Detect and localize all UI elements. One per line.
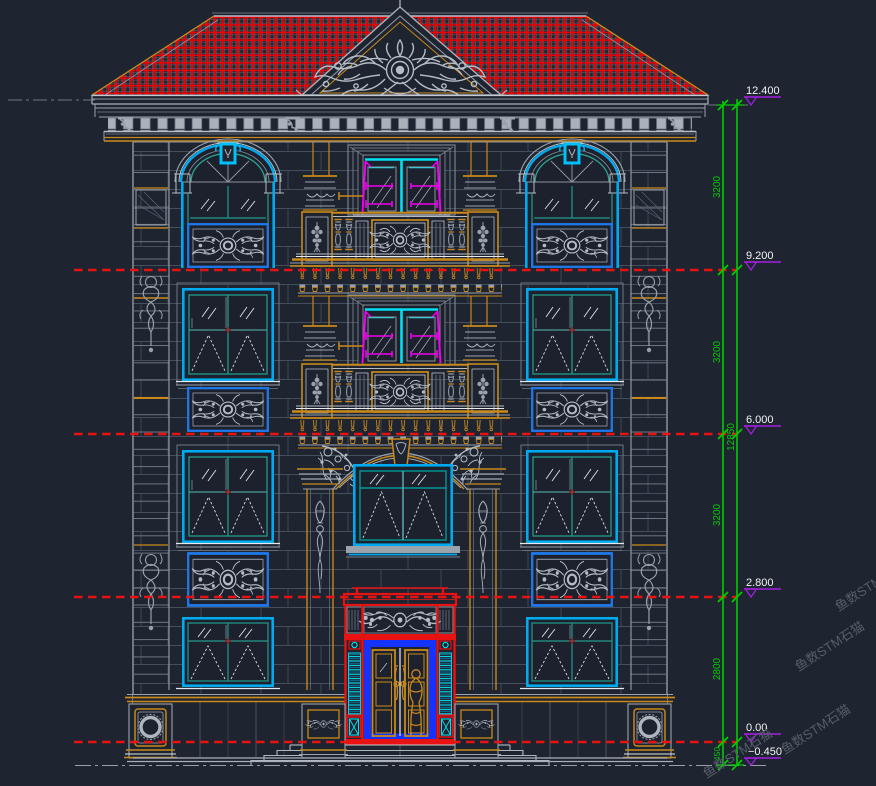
- svg-text:3200: 3200: [712, 175, 723, 198]
- svg-text:2.800: 2.800: [746, 577, 774, 589]
- svg-text:12.400: 12.400: [746, 85, 780, 97]
- svg-text:2800: 2800: [712, 657, 723, 680]
- svg-text:6.000: 6.000: [746, 414, 774, 426]
- svg-text:3200: 3200: [712, 503, 723, 526]
- svg-text:12850: 12850: [726, 423, 737, 451]
- svg-text:3200: 3200: [712, 340, 723, 363]
- svg-text:9.200: 9.200: [746, 250, 774, 262]
